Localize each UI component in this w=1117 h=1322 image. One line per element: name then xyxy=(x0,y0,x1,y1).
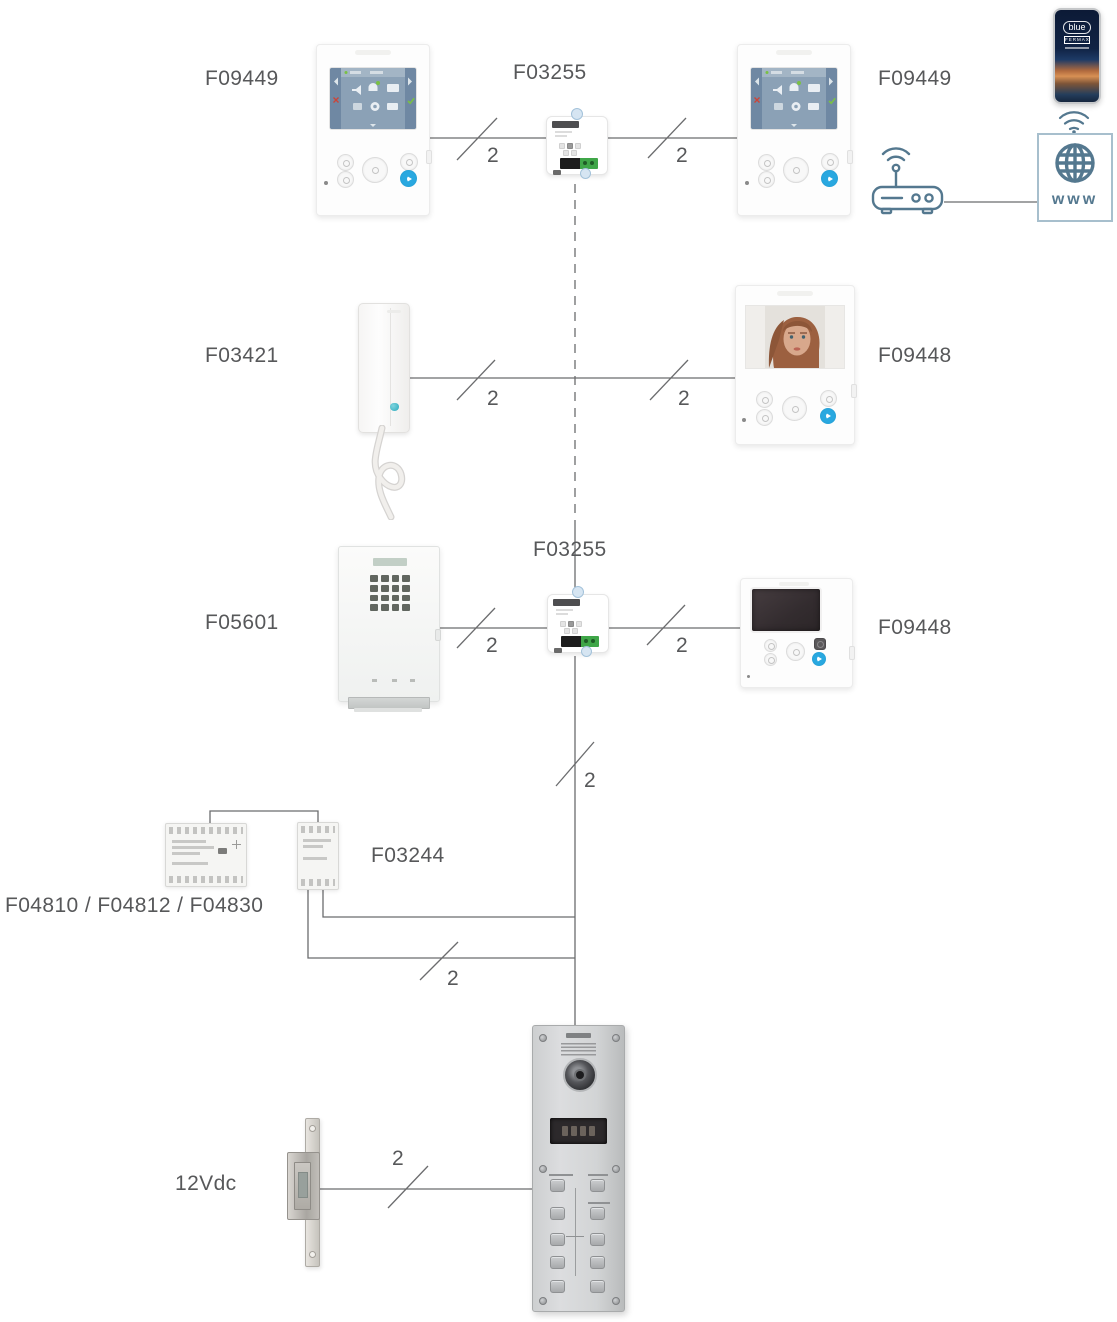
door-strike-body xyxy=(287,1152,320,1220)
screw xyxy=(539,1297,547,1305)
jumper-pin xyxy=(559,143,565,149)
screw xyxy=(612,1297,620,1305)
jumper-pin xyxy=(575,143,581,149)
digital-panel-f05601 xyxy=(338,546,440,702)
f1-button xyxy=(337,154,354,171)
jumper-pin xyxy=(564,628,570,634)
terminal-block xyxy=(561,636,599,647)
label-text-line xyxy=(172,846,214,849)
label-monitor-top-left: F09449 xyxy=(205,67,279,91)
door-open-button xyxy=(821,170,838,187)
panel-name-label xyxy=(373,558,407,566)
wire-count-label: 2 xyxy=(584,769,596,793)
monitor-screen-off xyxy=(752,589,820,631)
terminal-row-bottom xyxy=(169,876,243,883)
jumper-pin xyxy=(571,150,577,156)
audio-button xyxy=(786,642,805,661)
door-open-button xyxy=(400,170,417,187)
terminal-row-bottom xyxy=(301,879,335,886)
polarity-mark xyxy=(236,840,237,849)
side-tab xyxy=(847,150,853,164)
monitor-speaker-slot xyxy=(779,582,809,586)
bottom-marking xyxy=(553,170,561,175)
call-button xyxy=(590,1233,605,1246)
monitor-f09448-idle xyxy=(740,578,853,688)
label-text-line xyxy=(303,839,331,842)
menu-button xyxy=(764,653,777,666)
speaker-grille xyxy=(561,1043,596,1056)
wire-count-label: 2 xyxy=(392,1147,404,1171)
monitor-screen-videocall xyxy=(746,306,844,368)
door-open-button xyxy=(820,408,836,424)
caller-face-image xyxy=(746,306,844,368)
audio-button xyxy=(782,396,807,421)
side-tab xyxy=(426,150,432,164)
call-button xyxy=(590,1280,605,1293)
label-distributor-top: F03255 xyxy=(513,61,587,85)
wire-count-label: 2 xyxy=(676,144,688,168)
internet-box: www xyxy=(1037,133,1113,222)
www-text: www xyxy=(1039,191,1111,209)
label-monitor-top-right: F09449 xyxy=(878,67,952,91)
monitor-screen-menu xyxy=(330,68,416,129)
distributor-top xyxy=(546,116,608,175)
call-button xyxy=(590,1256,605,1269)
wire-count-label: 2 xyxy=(487,144,499,168)
call-button xyxy=(590,1179,605,1192)
mounting-tab xyxy=(571,108,583,120)
power-supply-module xyxy=(165,823,247,887)
microphone-hole xyxy=(324,181,328,185)
jumper-pin xyxy=(576,621,582,627)
mounting-hole xyxy=(580,168,591,179)
monitor-veo-top-left xyxy=(316,44,430,216)
button-group-label xyxy=(588,1174,608,1176)
menu-button xyxy=(337,171,354,188)
label-text-line xyxy=(303,845,323,848)
monitor-speaker-slot xyxy=(777,291,813,296)
call-button xyxy=(550,1179,565,1192)
label-filter: F03244 xyxy=(371,844,445,868)
app-tagline xyxy=(1065,47,1089,49)
button-group-label xyxy=(588,1202,610,1204)
product-label xyxy=(553,599,580,606)
diagram-canvas: 2 2 2 2 2 2 2 2 2 F09449 F03255 F09449 F… xyxy=(0,0,1117,1322)
entrance-panel xyxy=(532,1025,625,1312)
indicator-chip xyxy=(218,848,227,854)
bottom-marking xyxy=(392,679,397,682)
screw xyxy=(539,1034,547,1042)
jumper-pin xyxy=(572,628,578,634)
product-label xyxy=(552,121,579,128)
jumper-pin xyxy=(563,150,569,156)
terminal-black xyxy=(561,636,581,647)
microphone-hole xyxy=(742,418,746,422)
camera-button xyxy=(820,390,837,407)
label-digital-panel: F05601 xyxy=(205,611,279,635)
call-button xyxy=(550,1233,565,1246)
bottom-marking xyxy=(372,679,377,682)
call-button xyxy=(550,1256,565,1269)
label-text-line xyxy=(172,862,208,865)
panel-display xyxy=(550,1118,607,1144)
handset-call-button xyxy=(390,403,399,411)
terminal-row-top xyxy=(169,827,243,834)
terminal-black xyxy=(560,158,580,169)
monitor-f09448-active xyxy=(735,285,855,445)
bottom-marking xyxy=(410,679,415,682)
label-monitor-middle-right: F09448 xyxy=(878,344,952,368)
terminal-block xyxy=(560,158,598,169)
menu-button xyxy=(758,171,775,188)
screw xyxy=(539,1165,547,1173)
mounting-hole xyxy=(581,646,592,657)
door-open-button xyxy=(812,652,826,666)
f1-button xyxy=(756,391,773,408)
button-guide-line xyxy=(566,1236,584,1237)
label-text-line xyxy=(172,840,206,843)
label-text-line xyxy=(172,852,200,855)
call-button xyxy=(550,1280,565,1293)
label-door-lock-voltage: 12Vdc xyxy=(175,1172,237,1196)
fermax-brand: FERMAX xyxy=(1064,36,1090,44)
call-button xyxy=(590,1207,605,1220)
smartphone: blue FERMAX xyxy=(1053,8,1101,104)
globe-icon xyxy=(1053,141,1097,185)
router-icon xyxy=(860,142,950,217)
monitor-speaker-slot xyxy=(776,50,812,55)
wire-slash xyxy=(388,1166,428,1208)
panel-camera xyxy=(563,1058,597,1092)
blue-app-logo: blue xyxy=(1063,21,1091,34)
side-tab xyxy=(851,384,857,398)
call-button xyxy=(550,1207,565,1220)
keypad xyxy=(370,575,410,611)
monitor-speaker-slot xyxy=(355,50,391,55)
audio-button xyxy=(783,157,809,183)
label-text-line xyxy=(555,131,572,133)
filter-module-f03244 xyxy=(297,822,339,890)
handset-cord xyxy=(360,425,420,520)
jumper-pin xyxy=(560,621,566,627)
wire-filter-bus xyxy=(323,888,575,917)
menu-screen-graphic xyxy=(751,68,837,129)
screw xyxy=(612,1165,620,1173)
monitor-screen-menu xyxy=(751,68,837,129)
label-text-line xyxy=(556,609,573,611)
audio-handset xyxy=(358,303,410,433)
label-power-supplies: F04810 / F04812 / F04830 xyxy=(5,894,263,918)
wire-count-label: 2 xyxy=(487,387,499,411)
monitor-veo-top-right xyxy=(737,44,851,216)
camera-button xyxy=(400,153,418,171)
f1-button xyxy=(764,639,777,652)
bracket-lip xyxy=(354,708,422,712)
button-guide-line xyxy=(575,1188,576,1276)
microphone-hole xyxy=(747,675,750,678)
side-knob xyxy=(435,629,441,641)
menu-button xyxy=(756,409,773,426)
wire-filter-panel xyxy=(308,888,575,958)
button-group-label xyxy=(549,1174,573,1176)
label-audio-handset: F03421 xyxy=(205,344,279,368)
label-text-line xyxy=(303,857,327,860)
mounting-tab xyxy=(572,586,584,598)
wifi-icon xyxy=(1054,105,1094,135)
terminal-row-top xyxy=(301,826,335,833)
bottom-marking xyxy=(554,648,562,653)
wire-count-label: 2 xyxy=(678,387,690,411)
audio-button xyxy=(362,157,388,183)
menu-screen-graphic xyxy=(330,68,416,129)
handset-logo xyxy=(387,310,401,313)
microphone-hole xyxy=(745,181,749,185)
jumper-pin xyxy=(568,621,574,627)
label-monitor-bottom-right: F09448 xyxy=(878,616,952,640)
label-text-line xyxy=(556,613,568,615)
label-text-line xyxy=(555,135,567,137)
side-tab xyxy=(849,646,855,660)
camera-button xyxy=(814,638,826,650)
wire-count-label: 2 xyxy=(676,634,688,658)
distributor-middle xyxy=(547,594,609,653)
label-distributor-middle: F03255 xyxy=(533,538,607,562)
door-strike-latch xyxy=(294,1162,311,1210)
screw xyxy=(612,1034,620,1042)
f1-button xyxy=(758,154,775,171)
camera-button xyxy=(821,153,839,171)
wire-count-label: 2 xyxy=(486,634,498,658)
wire-count-label: 2 xyxy=(447,967,459,991)
jumper-pin xyxy=(567,143,573,149)
panel-brand-logo xyxy=(566,1033,591,1038)
